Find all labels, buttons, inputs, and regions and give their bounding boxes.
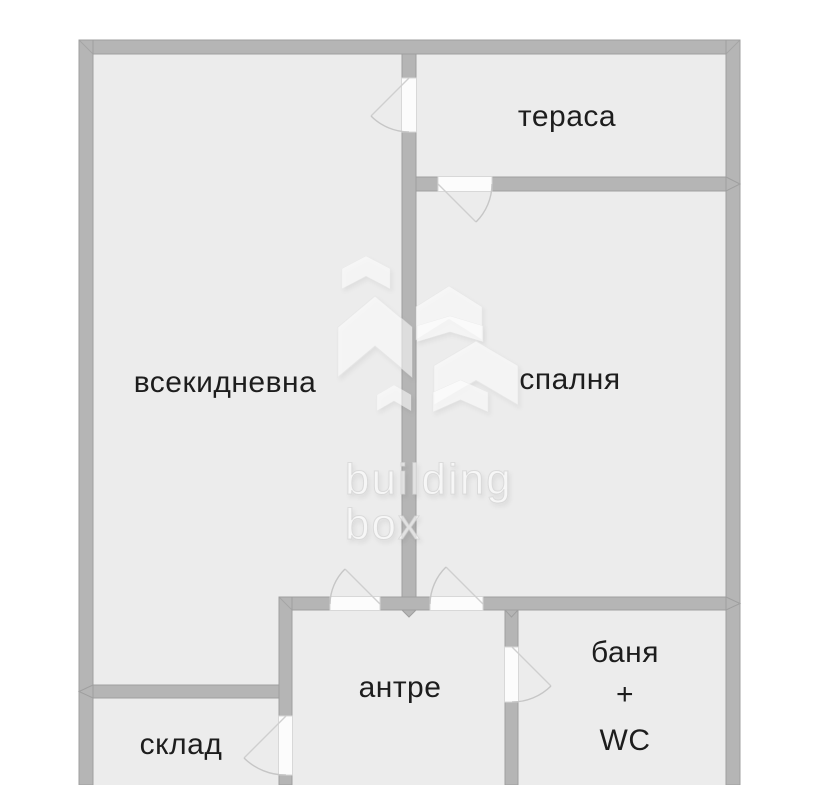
- wall-exterior-top: [79, 40, 740, 54]
- room-label-bathroom-line2: +: [616, 678, 634, 711]
- room-label-storage: склад: [140, 728, 223, 761]
- watermark-brand-line1: building: [345, 455, 513, 504]
- floor-plan-page: building box всекидневна тераса спалня а…: [0, 0, 837, 785]
- wall-exterior-right: [726, 40, 740, 785]
- wall-storage-top: [93, 685, 279, 698]
- room-label-bathroom-line3: WC: [600, 724, 651, 757]
- wall-exterior-left: [79, 40, 93, 785]
- room-label-living: всекидневна: [134, 366, 317, 399]
- room-label-bathroom-line1: баня: [591, 636, 659, 669]
- watermark-brand-line2: box: [345, 500, 422, 549]
- room-label-bedroom: спалня: [519, 363, 620, 396]
- floor-plan: building box всекидневна тераса спалня а…: [0, 0, 837, 785]
- room-label-hallway: антре: [359, 671, 442, 704]
- room-label-terrace: тераса: [518, 100, 616, 133]
